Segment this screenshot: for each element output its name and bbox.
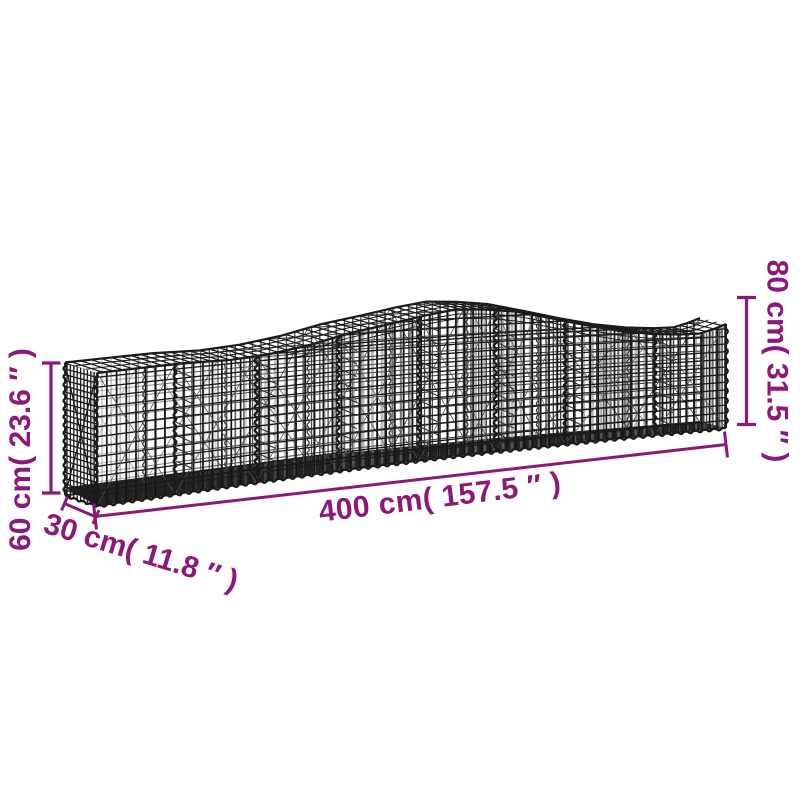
svg-text:80 cm( 31.5 ″ ): 80 cm( 31.5 ″ ): [761, 260, 794, 463]
svg-text:60 cm( 23.6 ″ ): 60 cm( 23.6 ″ ): [4, 348, 37, 551]
